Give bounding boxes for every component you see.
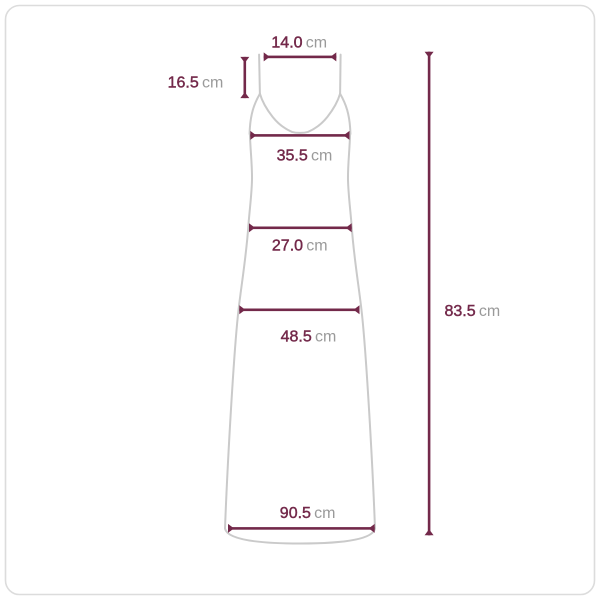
svg-text:35.5cm: 35.5cm bbox=[277, 148, 333, 165]
svg-text:83.5cm: 83.5cm bbox=[445, 303, 501, 320]
svg-text:27.0cm: 27.0cm bbox=[272, 238, 328, 255]
svg-text:48.5cm: 48.5cm bbox=[281, 329, 337, 346]
svg-text:14.0cm: 14.0cm bbox=[271, 34, 327, 51]
svg-text:16.5cm: 16.5cm bbox=[168, 75, 224, 92]
svg-text:90.5cm: 90.5cm bbox=[280, 505, 336, 522]
